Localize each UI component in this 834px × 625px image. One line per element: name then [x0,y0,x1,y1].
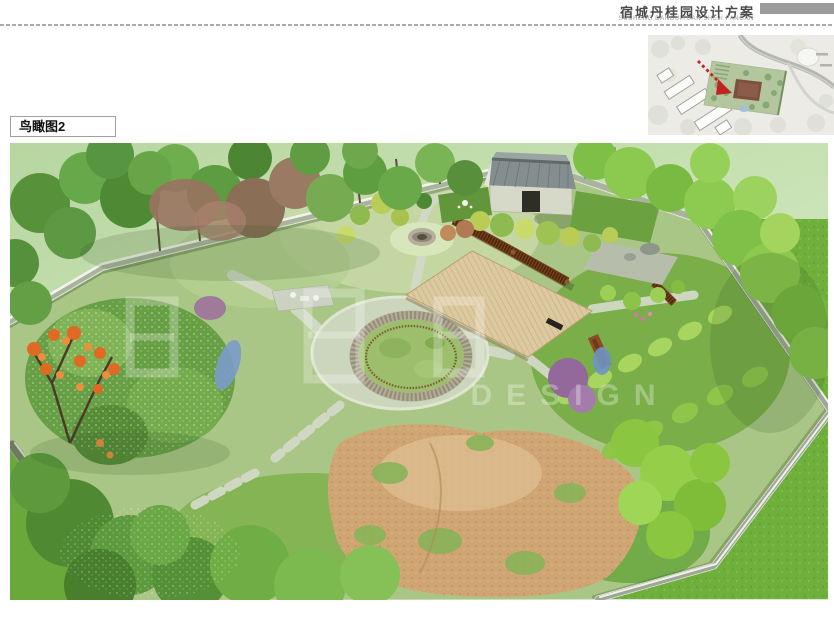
view-label-box: 鸟瞰图2 [10,116,116,137]
header-gray-bar [760,3,834,14]
context-building-blob [797,48,819,66]
header-dotted-divider [0,24,834,26]
site-plan-thumbnail [648,35,834,135]
aerial-view-image: DESIGN [10,143,828,600]
site-plan-drawing [648,35,834,135]
watermark-text: DESIGN [470,379,669,412]
page-subtitle: SUCHENG DANGUIYUAN SHEJI FANGAN [619,16,754,22]
garden-plot [704,61,786,115]
aerial-view-drawing: DESIGN [10,143,828,600]
